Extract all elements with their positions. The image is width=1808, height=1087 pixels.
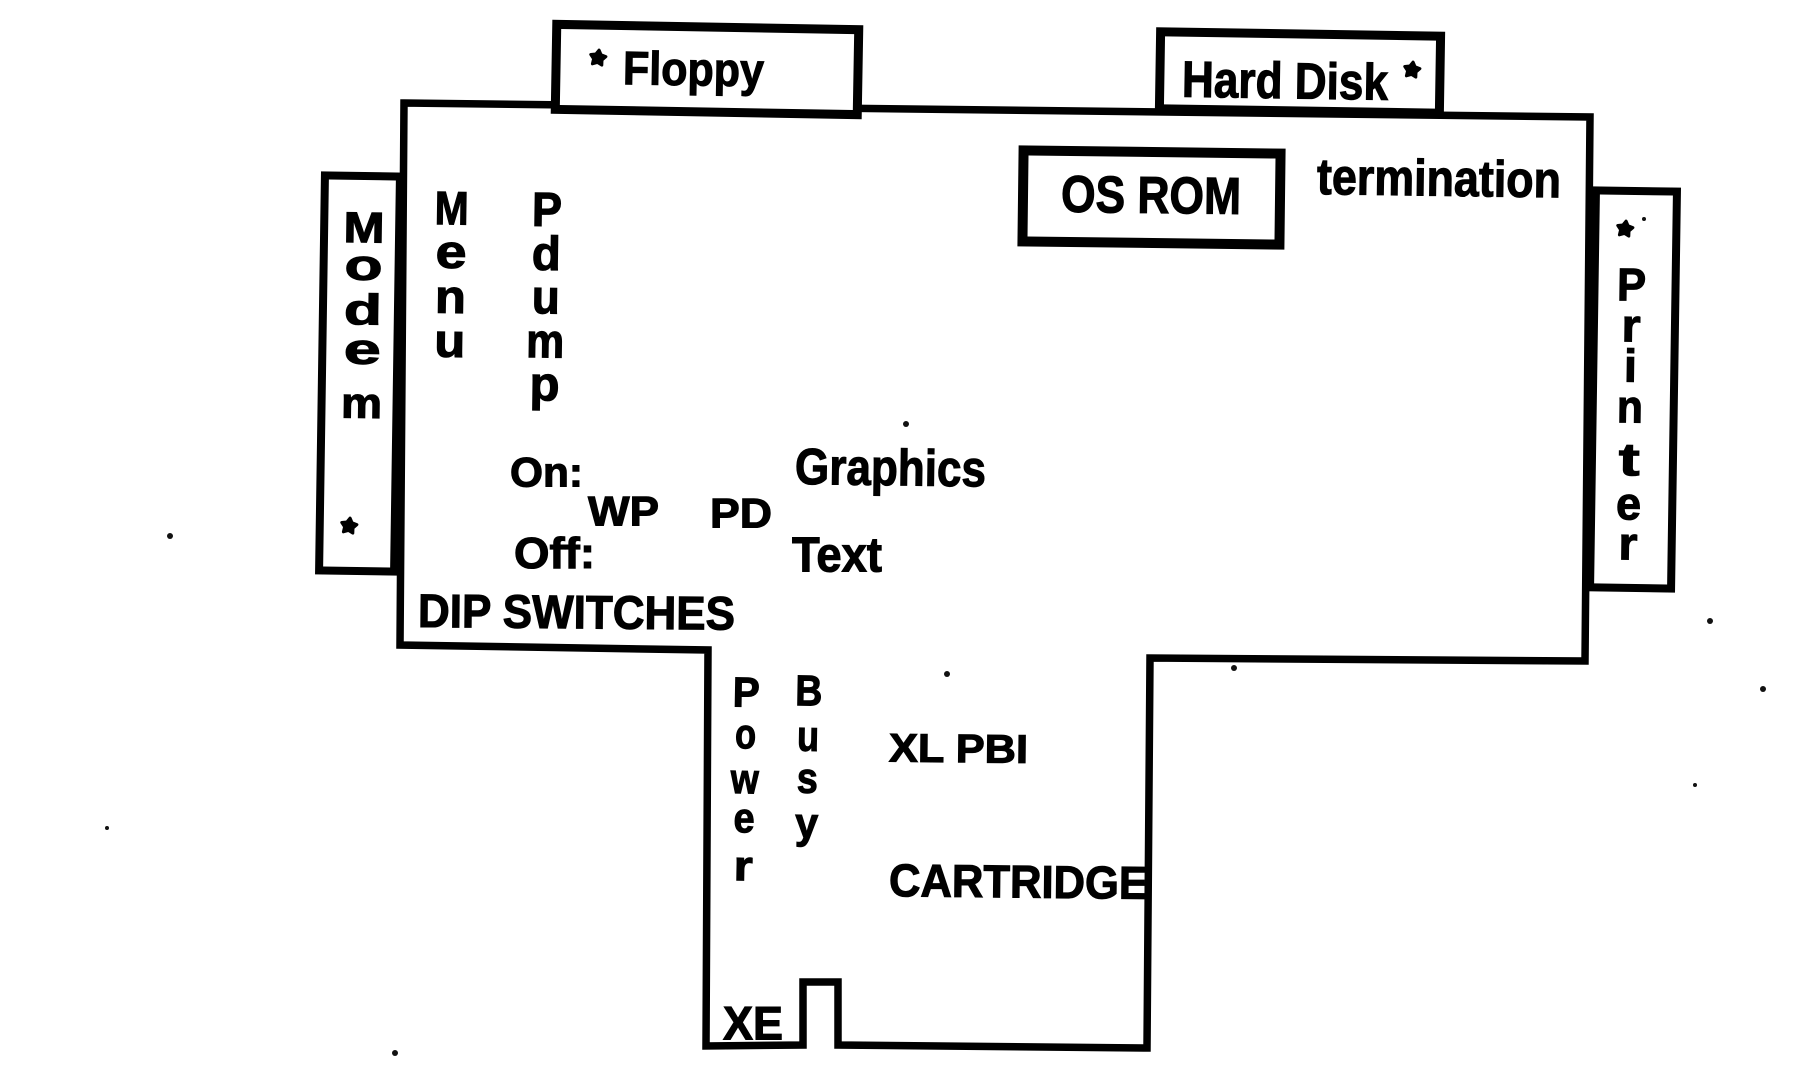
svg-text:o: o xyxy=(735,710,757,757)
svg-text:XE: XE xyxy=(723,996,783,1049)
svg-text:Text: Text xyxy=(792,529,882,583)
svg-text:XL PBI: XL PBI xyxy=(889,726,1028,771)
svg-text:B: B xyxy=(795,667,823,715)
svg-text:n: n xyxy=(1617,380,1644,432)
svg-text:Off:: Off: xyxy=(514,529,595,578)
svg-text:OS ROM: OS ROM xyxy=(1061,166,1242,226)
svg-text:PD: PD xyxy=(710,490,772,537)
svg-text:Floppy: Floppy xyxy=(623,41,765,96)
svg-text:CARTRIDGE: CARTRIDGE xyxy=(889,854,1149,909)
svg-text:WP: WP xyxy=(588,488,659,535)
svg-text:u: u xyxy=(434,314,466,367)
svg-text:s: s xyxy=(796,755,818,803)
svg-text:P: P xyxy=(732,668,760,715)
svg-text:Hard Disk: Hard Disk xyxy=(1182,51,1389,111)
svg-text:r: r xyxy=(1618,517,1638,569)
svg-text:On:: On: xyxy=(510,449,583,496)
svg-text:r: r xyxy=(733,842,753,889)
svg-text:o: o xyxy=(344,242,383,291)
svg-text:m: m xyxy=(341,380,383,429)
svg-text:termination: termination xyxy=(1317,148,1562,208)
svg-text:DIP SWITCHES: DIP SWITCHES xyxy=(418,584,735,640)
svg-text:Graphics: Graphics xyxy=(795,438,987,498)
svg-text:e: e xyxy=(733,794,755,841)
svg-text:p: p xyxy=(529,358,560,411)
svg-text:e: e xyxy=(344,326,382,375)
svg-text:y: y xyxy=(795,800,819,848)
